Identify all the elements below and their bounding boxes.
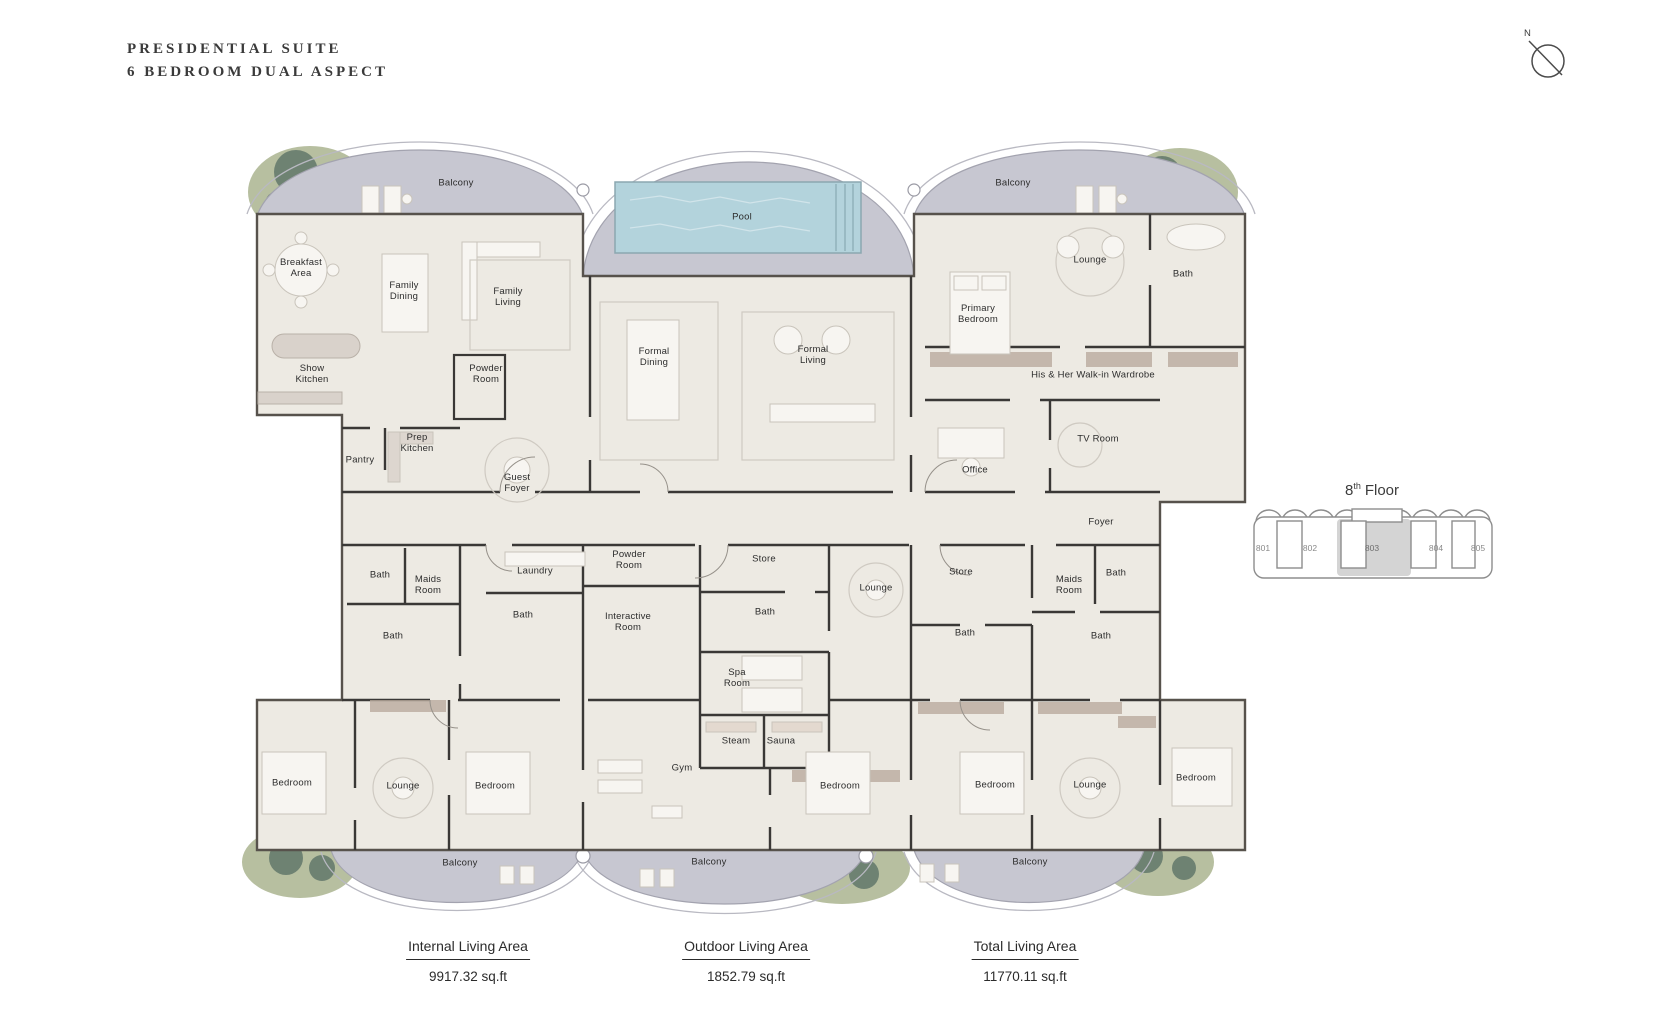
key-plan-floor-label: 8thFloor <box>1345 481 1399 499</box>
page-title: PRESIDENTIAL SUITE 6 BEDROOM DUAL ASPECT <box>127 38 388 84</box>
label-balcony: Balcony <box>679 856 739 867</box>
label-balcony: Balcony <box>1000 856 1060 867</box>
label-show-kitchen: Show Kitchen <box>286 363 338 385</box>
stat-label: Total Living Area <box>972 938 1079 960</box>
label-bedroom: Bedroom <box>463 780 527 791</box>
label-office: Office <box>950 464 1000 475</box>
stat-outdoor-living-area: Outdoor Living Area 1852.79 sq.ft <box>682 938 810 984</box>
label-lounge: Lounge <box>846 582 906 593</box>
stat-label: Internal Living Area <box>406 938 530 960</box>
page-title-line1: PRESIDENTIAL SUITE <box>127 38 388 61</box>
floor-suffix: th <box>1353 481 1361 491</box>
label-powder-room: Powder Room <box>602 549 656 571</box>
page-title-line2: 6 BEDROOM DUAL ASPECT <box>127 61 388 84</box>
label-bath: Bath <box>745 606 785 617</box>
label-bath: Bath <box>1161 268 1205 279</box>
label-interactive-room: Interactive Room <box>593 611 663 633</box>
label-formal-dining: Formal Dining <box>629 346 679 368</box>
label-bedroom: Bedroom <box>808 780 872 791</box>
stat-label: Outdoor Living Area <box>682 938 810 960</box>
label-store: Store <box>936 566 986 577</box>
floor-word: Floor <box>1365 482 1399 499</box>
label-pool: Pool <box>712 211 772 222</box>
label-maids-room: Maids Room <box>404 574 452 596</box>
unit-label-805: 805 <box>1471 543 1485 553</box>
unit-label-804: 804 <box>1429 543 1443 553</box>
label-laundry: Laundry <box>505 565 565 576</box>
label-lounge: Lounge <box>375 780 431 791</box>
unit-label-801: 801 <box>1256 543 1270 553</box>
label-store: Store <box>739 553 789 564</box>
label-family-living: Family Living <box>483 286 533 308</box>
label-guest-foyer: Guest Foyer <box>494 472 540 494</box>
label-bedroom: Bedroom <box>260 777 324 788</box>
label-steam: Steam <box>711 735 761 746</box>
unit-label-802: 802 <box>1303 543 1317 553</box>
label-bath: Bath <box>373 630 413 641</box>
stat-value: 11770.11 sq.ft <box>972 969 1079 984</box>
floor-plan-svg <box>0 0 1676 1028</box>
label-bath: Bath <box>360 569 400 580</box>
unit-label-803: 803 <box>1365 543 1379 553</box>
label-bath: Bath <box>1081 630 1121 641</box>
label-family-dining: Family Dining <box>379 280 429 302</box>
label-powder-room: Powder Room <box>459 363 513 385</box>
stat-value: 1852.79 sq.ft <box>682 969 810 984</box>
label-bath: Bath <box>945 627 985 638</box>
label-sauna: Sauna <box>756 735 806 746</box>
label-prep-kitchen: Prep Kitchen <box>391 432 443 454</box>
label-maids-room: Maids Room <box>1045 574 1093 596</box>
stat-total-living-area: Total Living Area 11770.11 sq.ft <box>972 938 1079 984</box>
label-formal-living: Formal Living <box>788 344 838 366</box>
label-balcony: Balcony <box>416 177 496 188</box>
label-primary-bedroom: Primary Bedroom <box>947 303 1009 325</box>
stat-internal-living-area: Internal Living Area 9917.32 sq.ft <box>406 938 530 984</box>
label-breakfast-area: Breakfast Area <box>272 257 330 279</box>
label-his-her-walk-in-wardrobe: His & Her Walk-in Wardrobe <box>988 369 1198 380</box>
label-foyer: Foyer <box>1076 516 1126 527</box>
label-balcony: Balcony <box>973 177 1053 188</box>
label-spa-room: Spa Room <box>714 667 760 689</box>
label-balcony: Balcony <box>430 857 490 868</box>
compass-north-label: N <box>1524 28 1531 39</box>
label-pantry: Pantry <box>335 454 385 465</box>
compass-icon <box>1529 41 1564 77</box>
label-lounge: Lounge <box>1062 779 1118 790</box>
label-bath: Bath <box>1096 567 1136 578</box>
stat-value: 9917.32 sq.ft <box>406 969 530 984</box>
label-bedroom: Bedroom <box>1164 772 1228 783</box>
label-tv-room: TV Room <box>1075 433 1121 444</box>
label-lounge: Lounge <box>1060 254 1120 265</box>
label-bath: Bath <box>503 609 543 620</box>
label-bedroom: Bedroom <box>963 779 1027 790</box>
label-gym: Gym <box>662 762 702 773</box>
